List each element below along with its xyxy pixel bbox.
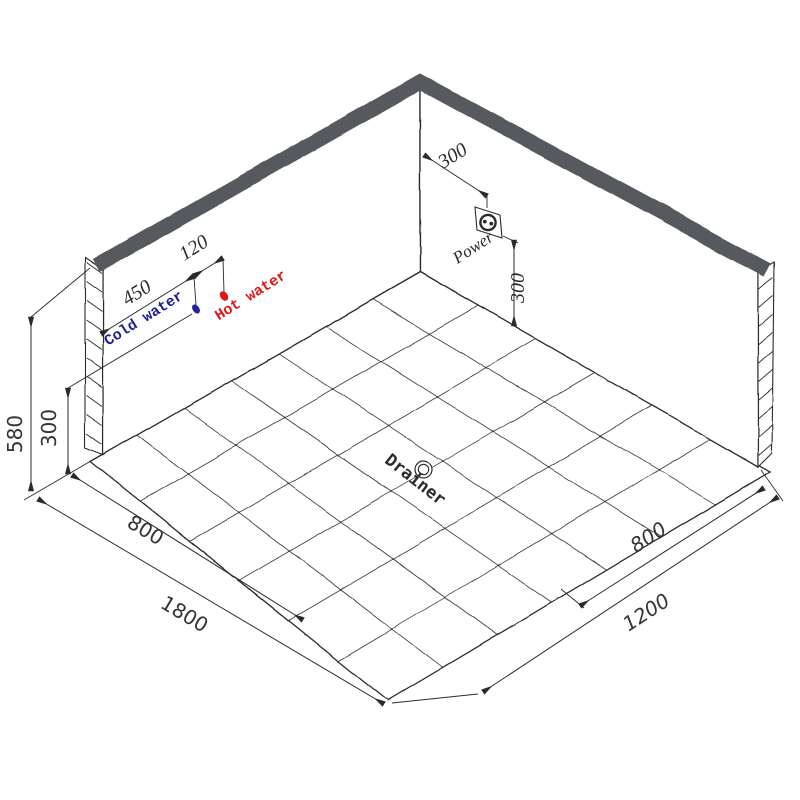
grid-node-dot	[715, 504, 717, 506]
grid-node-dot	[387, 699, 389, 701]
grid-node-dot	[497, 564, 499, 566]
extension-bottom-left	[24, 458, 96, 500]
grid-node-dot	[604, 501, 606, 503]
grid-node-dot	[332, 389, 334, 391]
dim-1200-label: 1200	[618, 588, 674, 636]
socket-pin-right	[489, 222, 493, 226]
power-socket-icon	[480, 215, 495, 230]
grid-node-dot	[437, 396, 439, 398]
grid-node-dot	[238, 511, 240, 513]
socket-pin-left	[483, 220, 487, 224]
grid-node-dot	[236, 445, 238, 447]
grid-node-dot	[444, 596, 446, 598]
grid-node-dot	[289, 550, 291, 552]
grid-node-dot	[288, 620, 290, 622]
grid-node-dot	[496, 634, 498, 636]
grid-node-dot	[600, 435, 602, 437]
grid-node-dot	[486, 367, 488, 369]
extension-1200-start	[392, 694, 478, 703]
grid-node-dot	[543, 401, 545, 403]
grid-node-dot	[340, 589, 342, 591]
dim-580-label: 580	[3, 415, 27, 453]
grid-node-dot	[392, 558, 394, 560]
grid-node-dot	[391, 628, 393, 630]
grid-node-dot	[442, 667, 444, 669]
right-wall-end-section	[758, 262, 774, 467]
grid-node-dot	[337, 659, 339, 661]
grid-node-dot	[288, 483, 290, 485]
grid-node-dot	[387, 425, 389, 427]
grid-node-dot	[492, 431, 494, 433]
grid-node-dot	[442, 461, 444, 463]
grid-node-dot	[551, 601, 553, 603]
extension-580-top	[31, 268, 90, 317]
grid-node-dot	[429, 332, 431, 334]
grid-node-dot	[188, 540, 190, 542]
grid-node-dot	[381, 361, 383, 363]
installation-diagram: 450 120 Cold water Hot water 580 300 300…	[0, 0, 800, 800]
grid-node-dot	[139, 501, 141, 503]
grid-node-dot	[187, 473, 189, 475]
grid-node-dot	[391, 491, 393, 493]
grid-node-dot	[496, 497, 498, 499]
grid-node-dot	[340, 520, 342, 522]
grid-node-dot	[337, 454, 339, 456]
grid-node-dot	[548, 466, 550, 468]
dim-300-left-label: 300	[37, 409, 61, 447]
grid-node-dot	[444, 527, 446, 529]
grid-node-dot	[605, 569, 607, 571]
grid-node-dot	[769, 471, 771, 473]
grid-node-dot	[551, 533, 553, 535]
extension-bottom-right-end	[761, 470, 783, 501]
grid-node-dot	[657, 469, 659, 471]
grid-node-dot	[284, 417, 286, 419]
dim-300-power-height-label: 300	[507, 273, 529, 304]
